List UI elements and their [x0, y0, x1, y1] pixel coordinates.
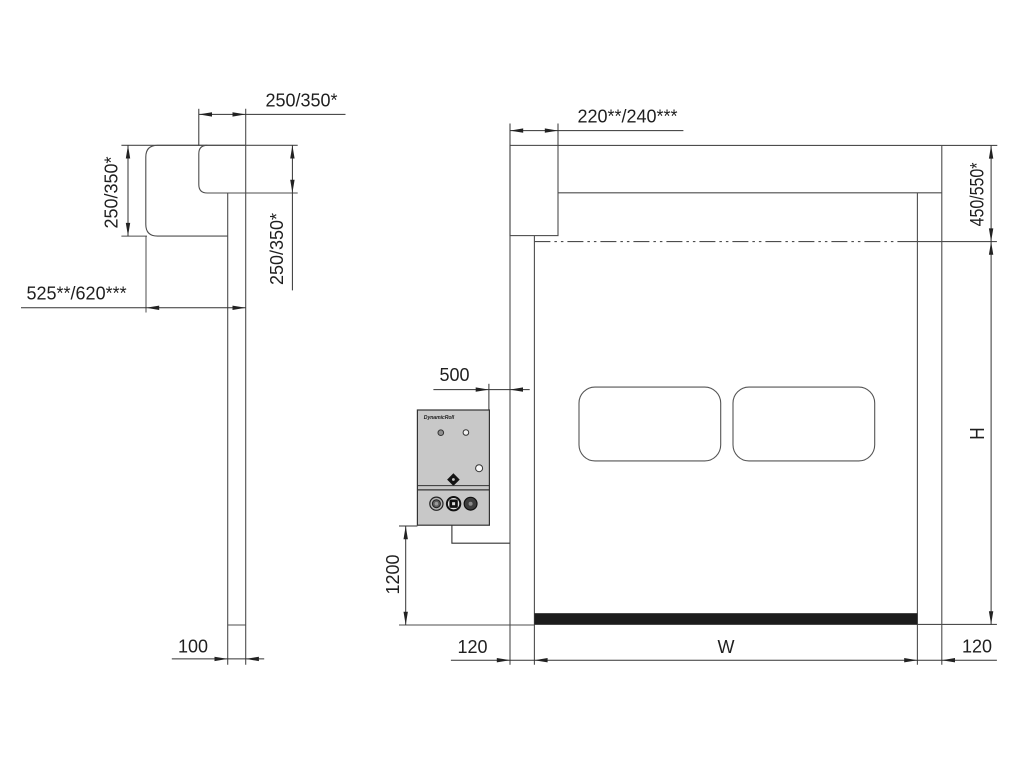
svg-text:250/350*: 250/350* [265, 90, 337, 110]
svg-text:250/350*: 250/350* [267, 213, 287, 285]
svg-text:500: 500 [439, 365, 469, 385]
svg-text:450/550*: 450/550* [966, 162, 988, 226]
svg-text:1200: 1200 [383, 554, 403, 594]
svg-text:DynamicRoll: DynamicRoll [424, 415, 455, 421]
svg-text:120: 120 [457, 637, 487, 657]
svg-text:525**/620***: 525**/620*** [27, 284, 127, 304]
svg-text:120: 120 [962, 637, 992, 657]
svg-text:250/350*: 250/350* [102, 156, 122, 228]
svg-text:220**/240***: 220**/240*** [577, 107, 677, 127]
svg-text:W: W [718, 637, 735, 657]
svg-text:H: H [967, 427, 990, 439]
svg-text:100: 100 [178, 637, 208, 657]
